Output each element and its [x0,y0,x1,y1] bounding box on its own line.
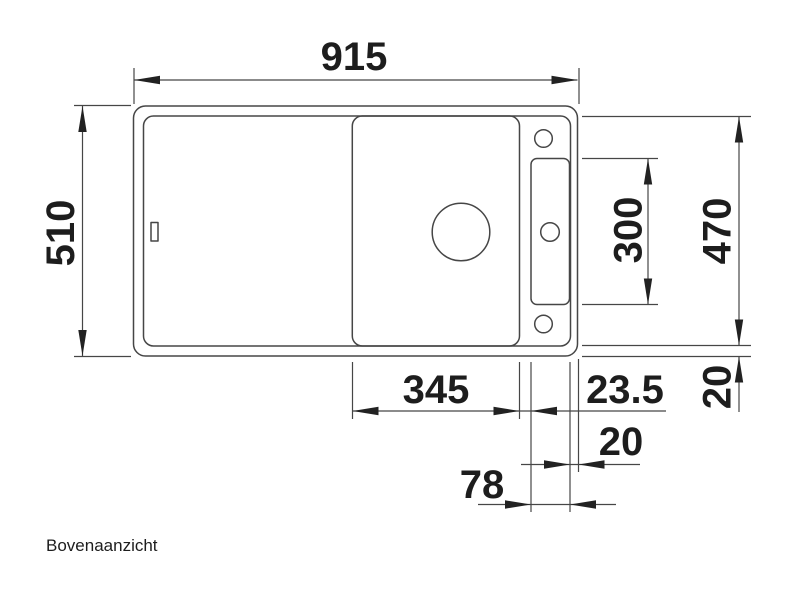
dimension-label-ledge-to-rim: 20 [599,420,644,464]
sink-outer-rim [134,106,578,356]
dimension-label-bowl-width: 345 [403,368,470,412]
tap-hole-bottom [535,315,553,333]
dimension-label-total-width: 915 [321,35,388,79]
arrowhead-down-icon [78,330,86,356]
arrowhead-right-icon [494,407,520,415]
arrowhead-right-icon [505,500,531,508]
dimension-label-inner-depth: 470 [696,198,740,265]
arrowhead-right-icon [552,76,578,84]
dimension-total-width: 915 [134,35,579,104]
dimension-label-bottom-rim: 20 [696,365,740,410]
arrowhead-up-icon [644,159,652,185]
dimension-tap-ledge-width: 78 [460,463,616,509]
sink-inner-rim [144,116,571,346]
sink-body [134,106,578,356]
technical-drawing-page: 915 510 470 300 20 [0,0,800,590]
tap-hole-top [535,130,553,148]
sink-top-view-drawing: 915 510 470 300 20 [0,0,800,590]
dimension-label-tap-ledge-width: 78 [460,463,505,507]
tap-ledge [531,159,570,305]
dimension-label-tap-ledge-length: 300 [607,197,651,264]
drainboard-notch [151,223,158,242]
arrowhead-up-icon [735,117,743,143]
drain-hole [432,203,490,261]
dimension-label-bowl-to-ledge-gap: 23.5 [586,368,664,412]
arrowhead-down-icon [644,279,652,305]
arrowhead-up-icon [78,106,86,132]
arrowhead-down-icon [735,320,743,346]
tap-hole-middle [541,223,560,242]
arrowhead-left-icon [531,407,557,415]
arrowhead-right-icon [544,460,570,468]
dimension-tap-ledge-length: 300 [582,159,658,305]
arrowhead-left-icon [353,407,379,415]
dimension-total-depth: 510 [39,106,131,357]
arrowhead-left-icon [134,76,160,84]
arrowhead-left-icon [570,500,596,508]
dimension-bowl-width-and-gap: 345 23.5 [353,368,667,415]
dimension-label-total-depth: 510 [39,200,83,267]
main-bowl [352,116,519,346]
drawing-title: Bovenaanzicht [46,536,158,555]
dimension-ledge-to-rim: 20 [521,420,643,469]
